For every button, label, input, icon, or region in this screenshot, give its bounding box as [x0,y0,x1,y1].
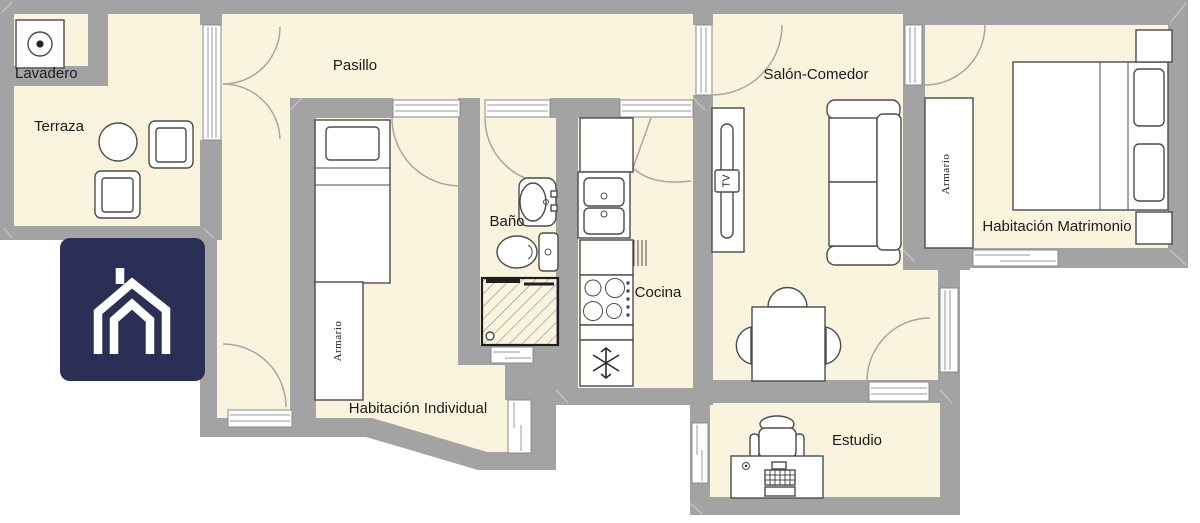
wardrobe-label: Armario [332,321,344,362]
door-band-salon-estudio [869,382,929,401]
chair-icon [149,121,193,168]
window-estudio-west [692,423,708,483]
label-pasillo: Pasillo [333,57,377,74]
label-bano: Baño [489,213,524,230]
label-habitacion-matrimonio: Habitación Matrimonio [982,218,1131,235]
window-salon-east [940,288,958,372]
wardrobe-label: Armario [940,154,952,195]
round-table-icon [99,123,137,161]
label-salon-comedor: Salón-Comedor [763,66,868,83]
brand-logo [60,238,205,381]
keyboard-icon [765,470,795,485]
tv-label: TV [722,174,733,187]
wardrobe-icon: Armario [925,98,973,248]
wardrobe-icon: Armario [315,282,363,400]
label-habitacion-individual: Habitación Individual [349,400,487,417]
window-terraza-pasillo [203,25,221,140]
toilet-icon [497,233,558,271]
single-bed-icon [315,120,390,283]
label-lavadero: Lavadero [15,65,78,82]
desk-icon [731,456,823,498]
double-bed-icon [1013,62,1168,210]
window-individual-southeast [508,400,531,453]
nightstand-icon [1136,212,1172,244]
sofa-icon [827,100,901,265]
window-under-shower [491,347,533,363]
window-strip-bottom [228,410,292,427]
door-band-cocina [620,100,693,117]
shower-icon [482,278,558,345]
chair-icon [95,171,140,218]
kitchen-sink-icon [578,172,630,238]
door-band-individual [393,100,460,117]
window-matrimonio-south [973,250,1058,266]
monitor-icon [772,462,786,469]
room-pasillo-floor [205,14,715,99]
washing-machine-icon [16,20,64,68]
paper-tray-icon [765,487,795,496]
label-terraza: Terraza [34,118,85,135]
drain-icon [486,332,494,340]
label-cocina: Cocina [635,284,682,301]
stove-icon [580,275,633,325]
door-band-bano [485,100,550,117]
tv-unit-icon: TV [712,108,744,252]
fridge-icon [580,340,633,386]
door-band-salon-matrimonio [905,25,922,85]
label-estudio: Estudio [832,432,882,449]
kitchen-counter [580,325,633,340]
washbasin-icon [519,178,557,226]
floor-plan: Armario [0,0,1200,523]
nightstand-icon [1136,30,1172,62]
door-band-pasillo-salon [696,25,712,95]
